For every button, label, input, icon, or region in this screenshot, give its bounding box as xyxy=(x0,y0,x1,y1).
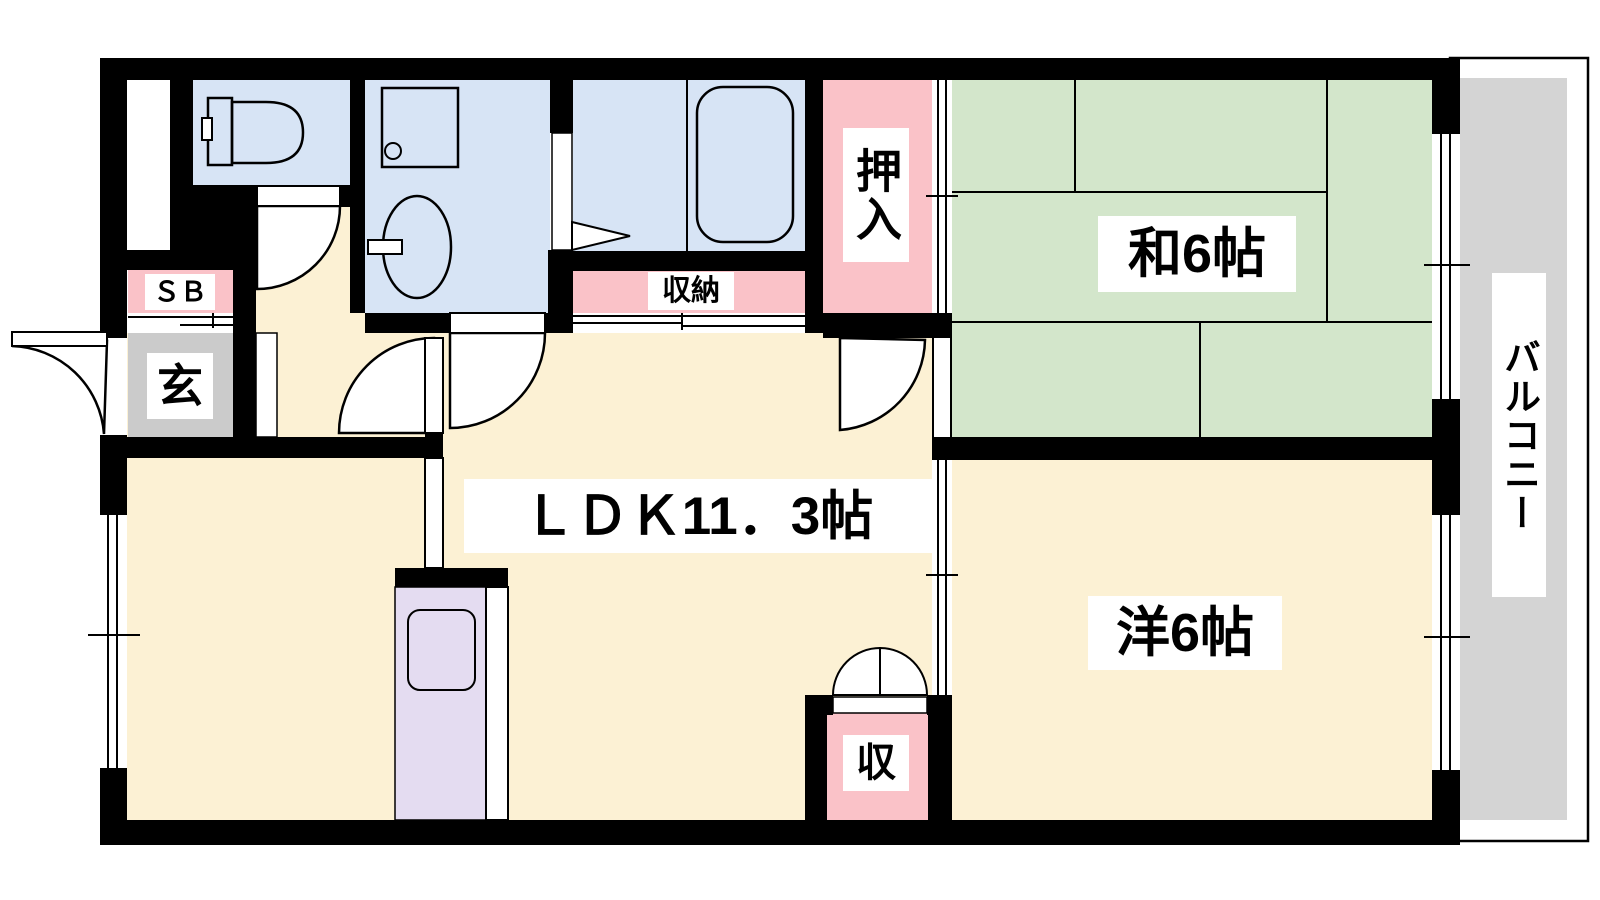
label-hall-storage: 収納 xyxy=(648,272,734,310)
label-ldk: ＬＤＫ11．3帖 xyxy=(464,479,932,553)
partition-kitchen-upper xyxy=(425,458,443,568)
label-western-storage: 収 xyxy=(843,735,909,791)
pipe-niche xyxy=(127,80,170,250)
floor-plan-drawing xyxy=(0,0,1600,900)
partition-kitchen-side xyxy=(486,587,508,820)
label-shoe-box: ＳＢ xyxy=(145,274,215,310)
tatami-doorway xyxy=(932,338,952,437)
entrance-door-swing xyxy=(12,341,107,434)
room-bathroom xyxy=(573,80,805,251)
toilet-handle xyxy=(202,118,212,140)
storage-lintel xyxy=(833,697,927,713)
label-balcony: バルコニー xyxy=(1492,273,1546,597)
hall-storage-slider xyxy=(573,313,805,330)
hall-door-panel xyxy=(425,338,443,433)
floor-plan: ＳＢ 玄 収納 押入 和6帖 ＬＤＫ11．3帖 洋6帖 収 バルコニー xyxy=(0,0,1600,900)
shoebox-step-lines xyxy=(128,313,233,333)
genkan-step-strip xyxy=(256,333,277,437)
washroom-door-panel xyxy=(450,313,545,333)
room-toilet xyxy=(193,80,350,185)
label-western-room: 洋6帖 xyxy=(1088,596,1282,670)
toilet-door-panel xyxy=(257,186,340,206)
entrance-door-panel xyxy=(12,332,107,346)
label-tatami-room: 和6帖 xyxy=(1098,216,1296,292)
label-oshiire: 押入 xyxy=(843,128,909,262)
washbasin-tap xyxy=(368,240,402,254)
label-entrance: 玄 xyxy=(147,353,213,419)
